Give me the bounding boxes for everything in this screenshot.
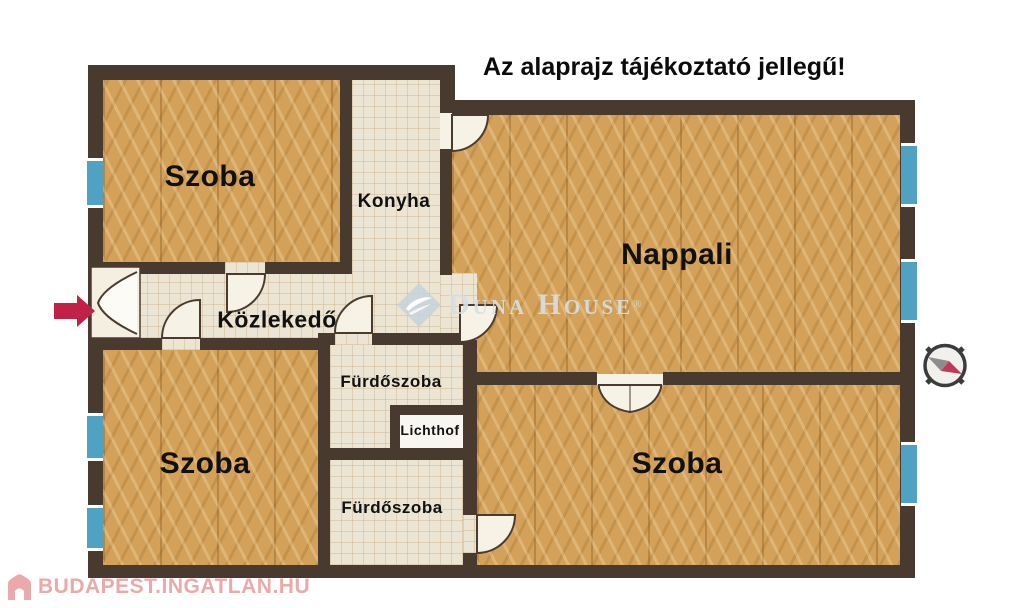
wall-segment [463, 553, 477, 565]
registered-mark: ® [633, 299, 641, 311]
wall-segment [265, 262, 352, 274]
room-label-szoba-bottom-left: Szoba [160, 447, 251, 481]
wall-segment [103, 262, 225, 274]
wall-segment [440, 145, 452, 275]
wall-segment [88, 65, 455, 80]
room-label-szoba-bottom-right: Szoba [632, 447, 723, 481]
floor-plan-canvas: Az alaprajz tájékoztató jellegű! Szoba K… [0, 0, 1024, 608]
room-label-nappali: Nappali [621, 238, 733, 272]
window [901, 442, 917, 506]
window [87, 413, 103, 461]
room-label-furdoszoba-upper: Fürdőszoba [340, 372, 441, 392]
duna-house-diamond-icon [396, 282, 442, 328]
ingatlan-house-icon [6, 573, 33, 601]
wall-segment [440, 100, 915, 115]
disclaimer-title: Az alaprajz tájékoztató jellegű! [483, 53, 846, 82]
wall-segment [88, 338, 162, 350]
duna-house-brand-text: Duna House [448, 288, 633, 321]
site-watermark-text: BUDAPEST.INGATLAN.HU [38, 575, 310, 599]
wall-segment [463, 372, 597, 385]
wall-segment [340, 80, 352, 274]
door-jamb [440, 113, 452, 149]
window [901, 143, 917, 207]
site-watermark: BUDAPEST.INGATLAN.HU [6, 573, 310, 601]
doorway-floor-patch [162, 338, 200, 350]
window [87, 505, 103, 551]
room-label-lichthof: Lichthof [400, 422, 459, 438]
wall-segment [663, 372, 915, 385]
window [87, 158, 103, 208]
room-label-furdoszoba-lower: Fürdőszoba [341, 498, 442, 518]
doorway-floor-patch [225, 262, 265, 274]
room-label-kozlekedo: Közlekedő [217, 307, 337, 334]
duna-house-watermark: Duna House® [396, 282, 642, 328]
wall-segment [390, 405, 400, 450]
room-label-konyha: Konyha [358, 191, 431, 213]
doorway-floor-patch [335, 333, 372, 345]
wall-segment [200, 338, 330, 350]
wall-segment [372, 333, 463, 345]
doorway-floor-patch [463, 515, 477, 553]
wall-segment [318, 338, 330, 565]
room-label-szoba-top-left: Szoba [165, 160, 256, 194]
compass-icon [925, 346, 965, 386]
wall-segment [88, 65, 103, 578]
wall-segment [463, 340, 477, 515]
window [901, 259, 917, 323]
